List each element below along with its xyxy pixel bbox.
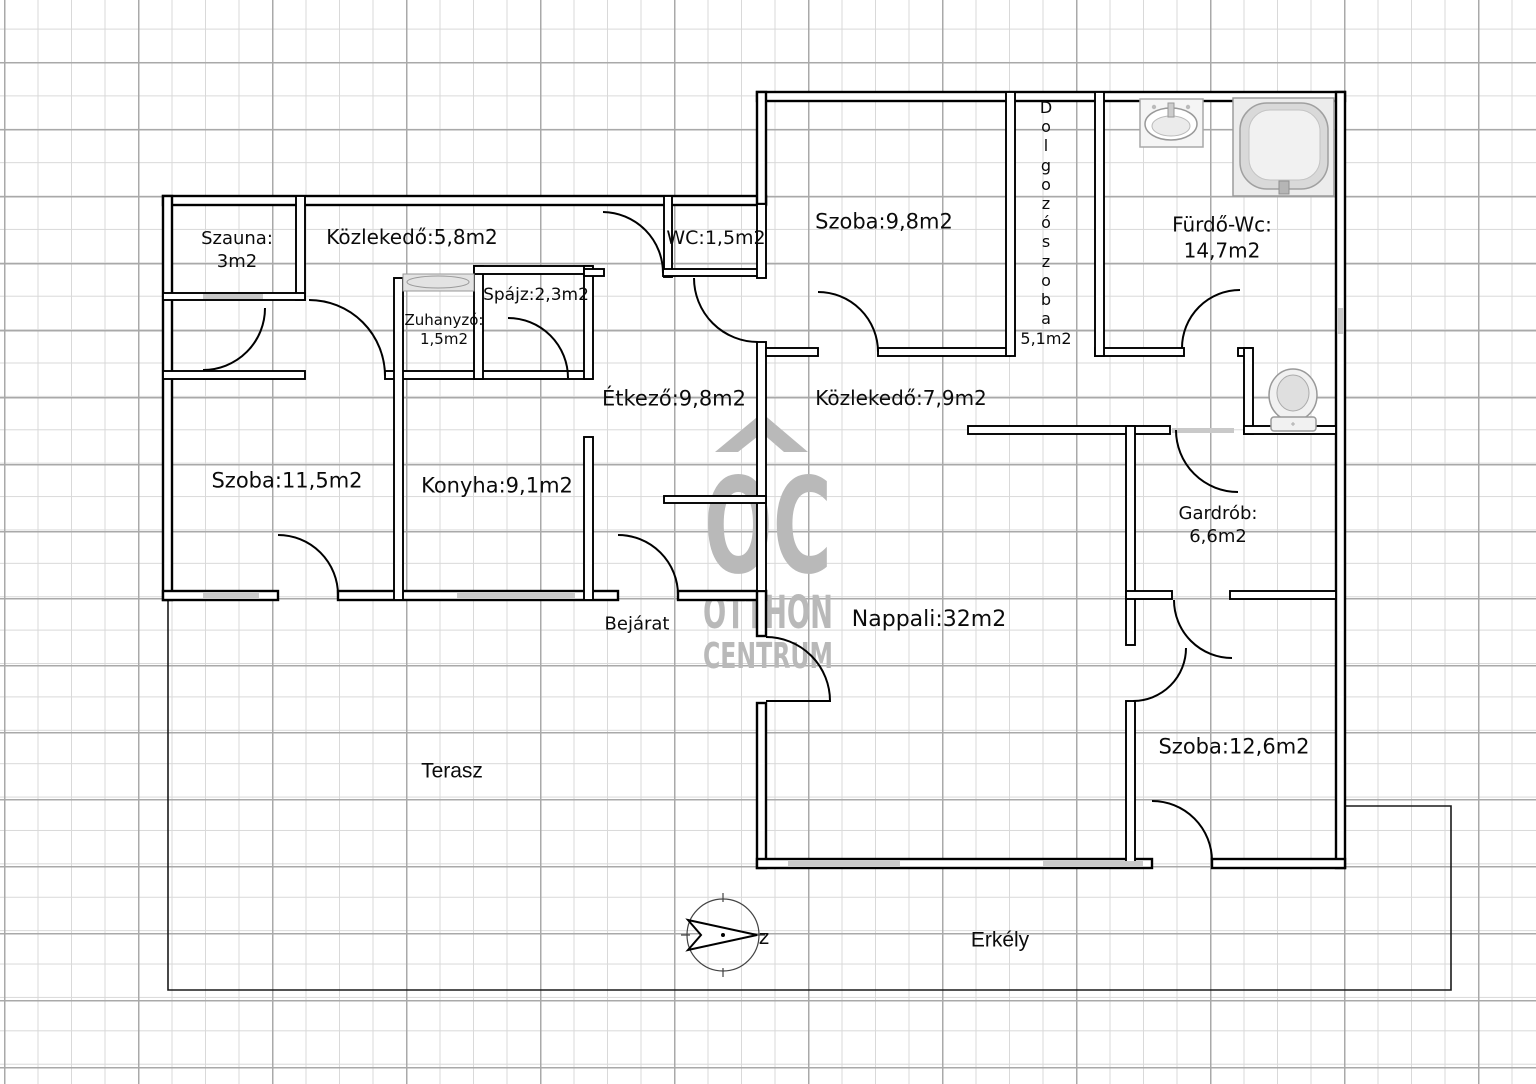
room-label-szoba-jobb: Szoba:12,6m2	[1158, 734, 1309, 761]
door-arc-gardrob-szoba	[1174, 600, 1232, 658]
door-arc-gardrob	[1176, 430, 1238, 492]
door-arc-etkezo	[694, 278, 758, 342]
room-label-szoba-bal: Szoba:11,5m2	[211, 468, 362, 495]
window-icon	[1043, 861, 1143, 866]
window-icon	[203, 593, 259, 598]
sink-icon	[1140, 99, 1203, 147]
room-area-dolgozoszoba: 5,1m2	[1020, 329, 1071, 349]
room-label-nappali: Nappali:32m2	[852, 606, 1006, 634]
door-arc-szauna	[203, 308, 265, 370]
room-label-bejarat: Bejárat	[605, 612, 670, 635]
toilet-icon	[1269, 369, 1317, 431]
floor-plan-drawing: OC OTTHON CENTRUM	[0, 0, 1536, 1084]
room-label-kozlekedo-felso: Közlekedő:5,8m2	[326, 225, 498, 251]
door-arc-szoba-jobb-erkely	[1152, 801, 1212, 861]
room-label-spajz: Spájz:2,3m2	[483, 285, 589, 307]
window-icon	[1337, 308, 1344, 334]
room-label-konyha: Konyha:9,1m2	[421, 473, 573, 500]
room-label-zuhanyzo: Zuhanyzó: 1,5m2	[405, 311, 484, 349]
window-icon	[1172, 428, 1234, 433]
sliding-door-icon	[403, 274, 474, 291]
door-arc-szoba-bal-terasz	[278, 535, 338, 595]
door-arc-furdo	[1182, 290, 1240, 348]
room-label-szoba-felso: Szoba:9,8m2	[815, 209, 953, 236]
door-arc-hall	[309, 300, 385, 376]
floor-plan-canvas: OC OTTHON CENTRUM	[0, 0, 1536, 1084]
compass-direction-label: z	[759, 925, 770, 951]
room-label-etkezo: Étkező:9,8m2	[602, 386, 746, 413]
door-arc-spajz	[508, 318, 568, 378]
door-arc-konyha-terasz	[618, 535, 678, 595]
compass-icon	[681, 893, 765, 977]
watermark-line2-text: CENTRUM	[703, 636, 833, 677]
room-label-terasz: Terasz	[421, 759, 483, 786]
door-arc-wc	[603, 212, 663, 273]
window-icon	[457, 593, 575, 598]
room-label-wc: WC:1,5m2	[666, 226, 765, 250]
room-label-kozlekedo-also: Közlekedő:7,9m2	[815, 386, 987, 412]
bathtub-icon	[1233, 98, 1334, 196]
watermark-oc-text: OC	[704, 450, 832, 604]
door-arc-szoba-felso	[818, 292, 878, 352]
door-arc-szoba-jobb	[1133, 648, 1186, 701]
room-label-erkely: Erkély	[971, 928, 1029, 955]
room-label-furdo: Fürdő-Wc: 14,7m2	[1172, 212, 1272, 263]
room-label-gardrob: Gardrób: 6,6m2	[1179, 502, 1258, 548]
room-label-szauna: Szauna: 3m2	[201, 227, 273, 273]
window-icon	[788, 861, 900, 866]
room-label-dolgozoszoba: D o l g o z ó s z o b a	[1040, 98, 1052, 328]
window-icon	[203, 294, 263, 299]
